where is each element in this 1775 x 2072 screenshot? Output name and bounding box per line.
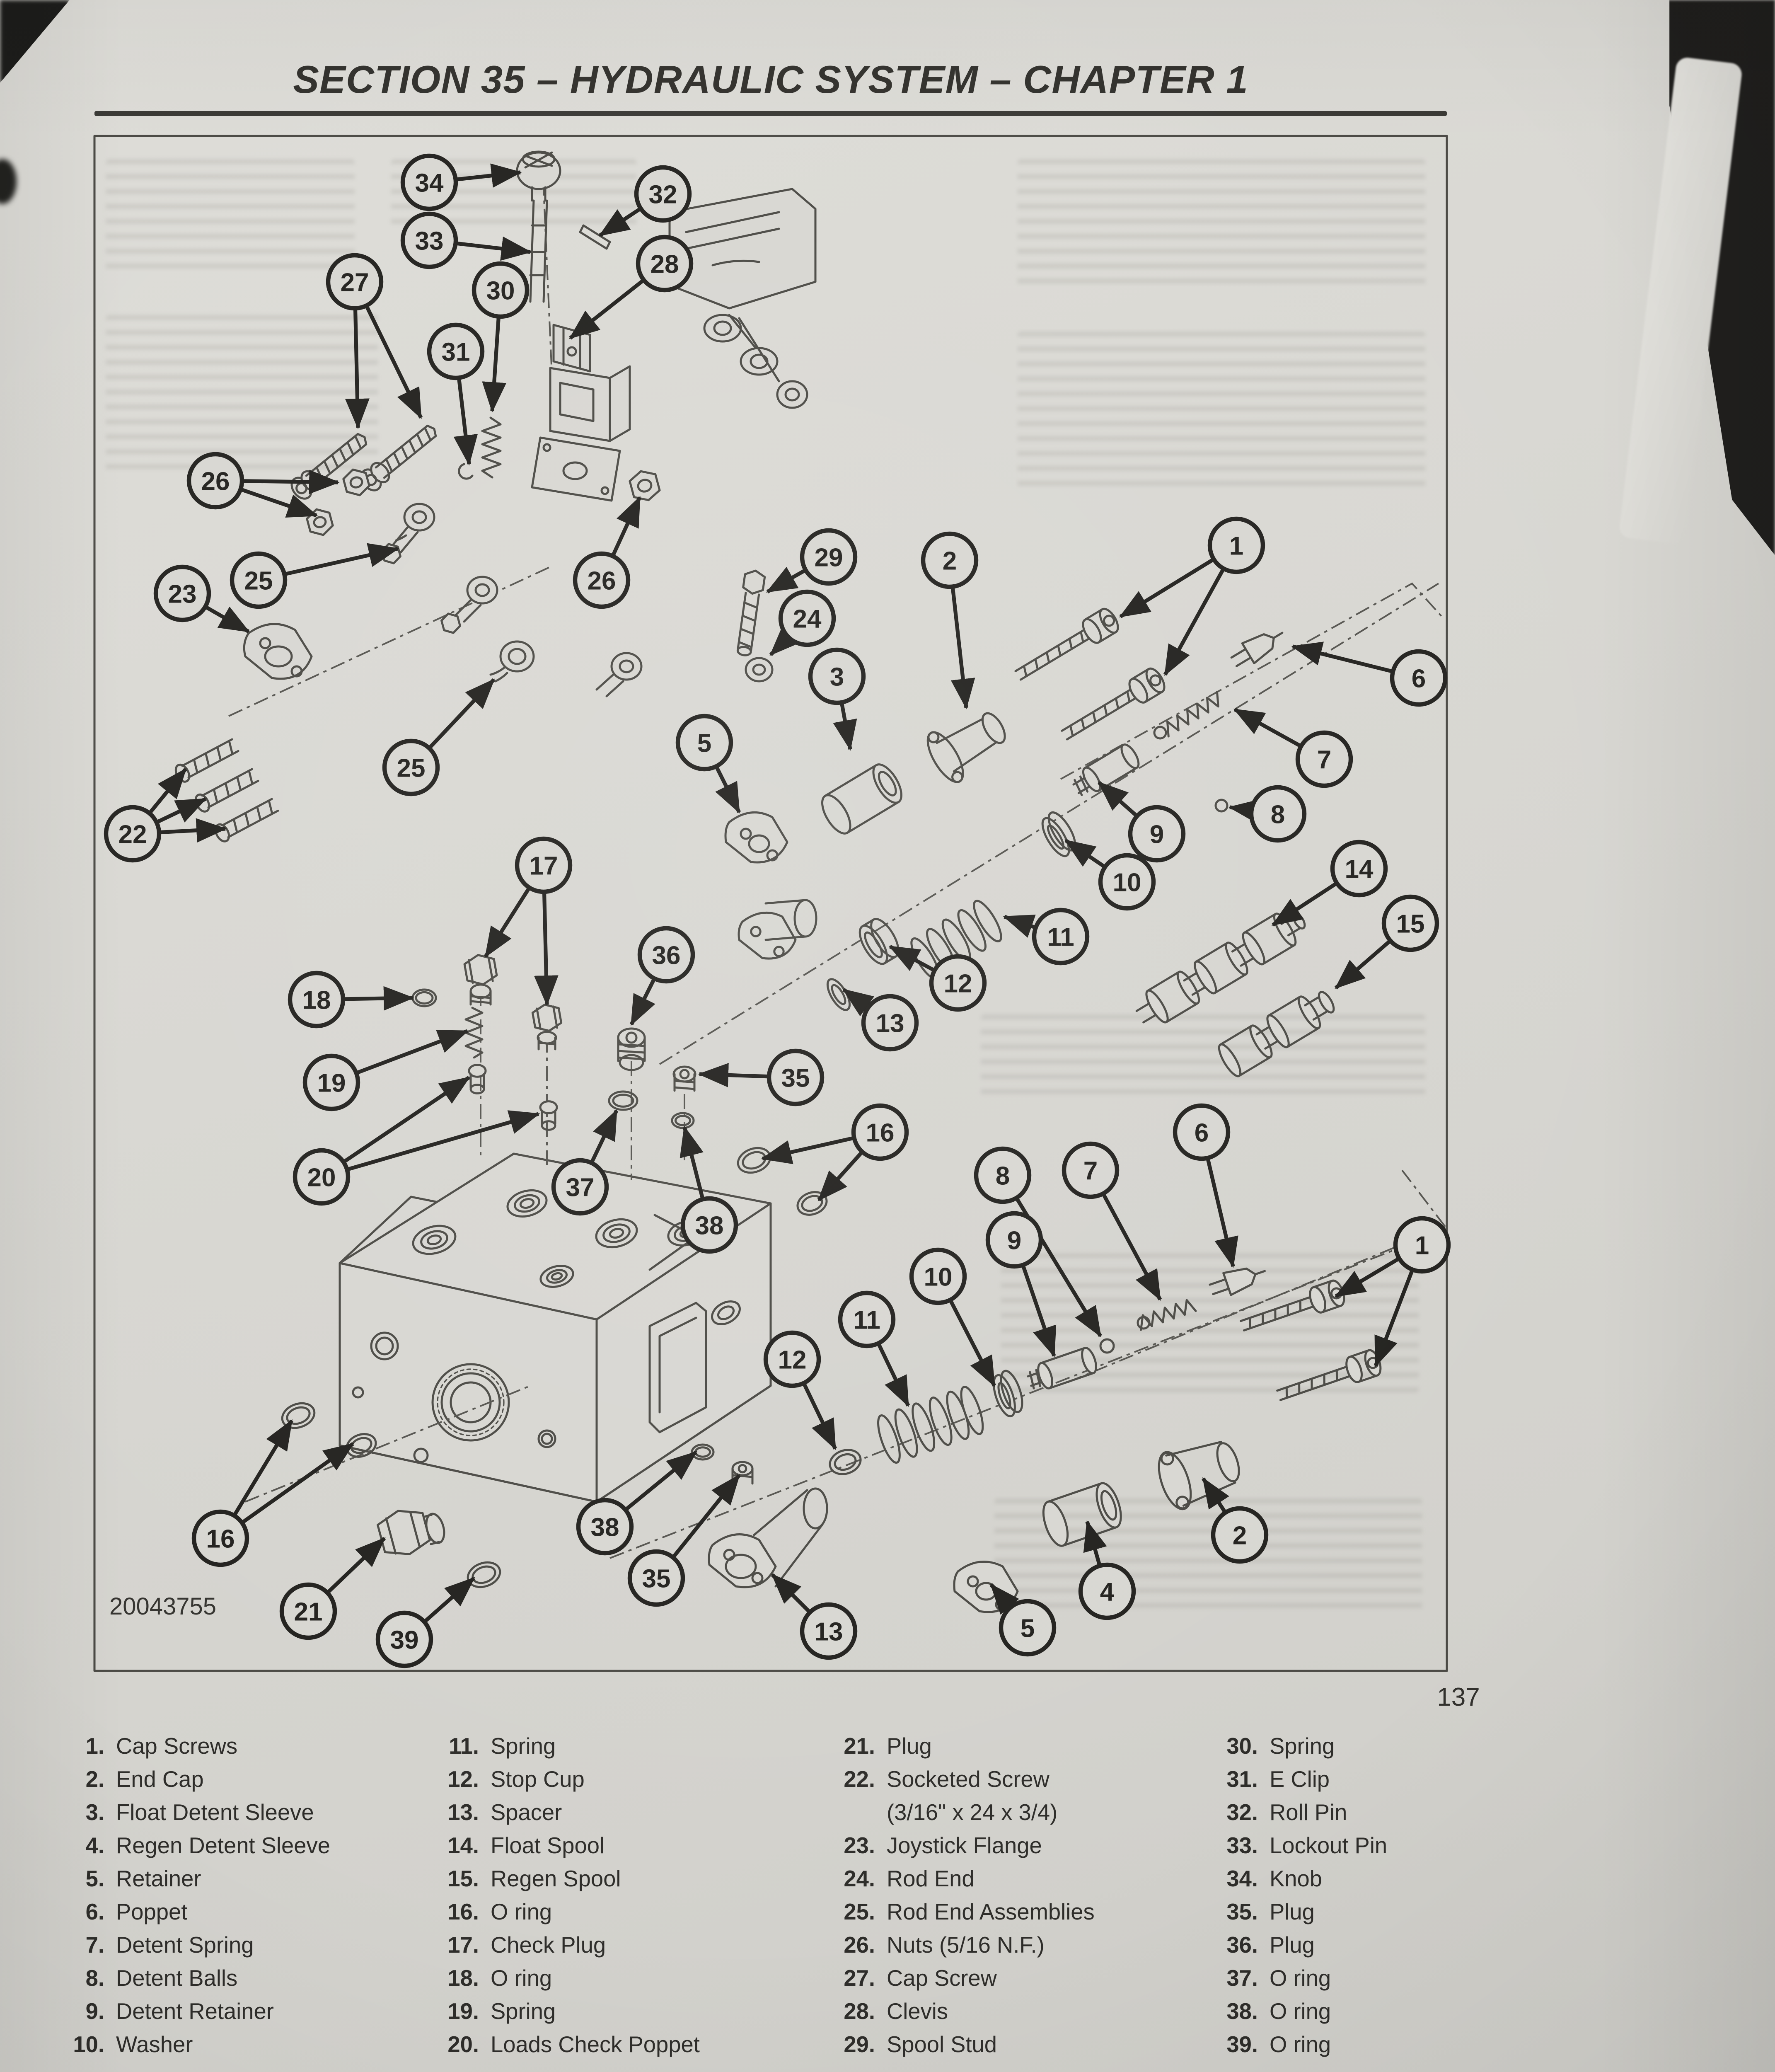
- callout-12: 12: [766, 1333, 819, 1386]
- callout-arrow: [1235, 709, 1299, 746]
- parts-column: 11.Spring12.Stop Cup13.Spacer14.Float Sp…: [434, 1731, 700, 2062]
- callout-arrow: [1023, 1266, 1054, 1356]
- parts-list-item: 30.Spring: [1213, 1731, 1387, 1764]
- parts-list-item: 1.Cap Screws: [60, 1731, 330, 1764]
- parts-list-item: 8.Detent Balls: [60, 1963, 330, 1996]
- svg-text:9: 9: [1150, 821, 1164, 849]
- svg-text:24: 24: [793, 605, 822, 634]
- photo-of-manual-page: SECTION 35 – HYDRAULIC SYSTEM – CHAPTER …: [0, 0, 1775, 2072]
- callout-arrow: [235, 1421, 292, 1514]
- callout-arrow: [544, 893, 547, 1005]
- callout-9: 9: [988, 1213, 1041, 1266]
- svg-text:4: 4: [1100, 1578, 1115, 1607]
- page-number: 137: [1392, 1684, 1525, 1714]
- svg-text:5: 5: [697, 729, 711, 758]
- parts-list-item: 35.Plug: [1213, 1896, 1387, 1929]
- parts-list-item: 22.Socketed Screw: [830, 1764, 1095, 1797]
- callout-10: 10: [1100, 855, 1154, 908]
- svg-text:1: 1: [1229, 532, 1243, 561]
- svg-text:14: 14: [1345, 855, 1374, 884]
- parts-list-item: 37.O ring: [1213, 1963, 1387, 1996]
- svg-text:25: 25: [244, 567, 273, 595]
- callout-arrow: [1336, 942, 1389, 988]
- svg-text:12: 12: [778, 1346, 807, 1375]
- svg-text:2: 2: [1233, 1522, 1247, 1550]
- callout-arrow: [1230, 807, 1250, 810]
- callout-34: 34: [403, 156, 456, 209]
- callout-16: 16: [194, 1512, 247, 1565]
- callout-arrow: [890, 946, 933, 970]
- svg-text:23: 23: [168, 580, 197, 609]
- svg-text:5: 5: [1021, 1615, 1035, 1643]
- parts-list-item: 28.Clevis: [830, 1996, 1095, 2029]
- svg-text:27: 27: [341, 269, 369, 297]
- callout-13: 13: [863, 996, 917, 1049]
- callout-arrow: [1087, 1522, 1099, 1564]
- callout-6: 6: [1175, 1106, 1228, 1159]
- callout-38: 38: [578, 1500, 631, 1553]
- callout-35: 35: [630, 1552, 683, 1605]
- callout-13: 13: [802, 1605, 855, 1658]
- parts-list-item: 38.O ring: [1213, 1996, 1387, 2029]
- callout-37: 37: [554, 1160, 607, 1213]
- callout-arrow: [767, 571, 804, 592]
- callout-arrow: [762, 1138, 853, 1159]
- svg-text:21: 21: [294, 1598, 323, 1627]
- callout-9: 9: [1130, 807, 1183, 860]
- callout-18: 18: [290, 973, 343, 1026]
- callout-arrow: [1376, 1271, 1412, 1366]
- svg-text:8: 8: [996, 1162, 1010, 1191]
- callout-arrow: [1273, 884, 1335, 925]
- svg-text:3: 3: [830, 663, 844, 692]
- callout-1: 1: [1395, 1218, 1449, 1271]
- callout-19: 19: [305, 1056, 358, 1109]
- svg-text:33: 33: [415, 227, 444, 256]
- callout-30: 30: [474, 264, 527, 317]
- svg-text:20: 20: [307, 1164, 336, 1192]
- svg-text:9: 9: [1007, 1227, 1021, 1255]
- parts-list-item: 12.Stop Cup: [434, 1764, 700, 1797]
- svg-text:18: 18: [302, 986, 331, 1015]
- callout-arrow: [329, 1538, 385, 1592]
- svg-text:6: 6: [1195, 1119, 1209, 1147]
- callout-15: 15: [1384, 897, 1437, 950]
- parts-list-item: 9.Detent Retainer: [60, 1996, 330, 2029]
- callout-arrow: [592, 1111, 617, 1162]
- callout-7: 7: [1298, 733, 1351, 786]
- callout-28: 28: [638, 237, 691, 290]
- svg-text:22: 22: [118, 821, 147, 849]
- callout-20: 20: [295, 1150, 348, 1203]
- svg-text:38: 38: [591, 1513, 619, 1542]
- callout-35: 35: [769, 1051, 822, 1104]
- float-spool-assembly-drawing: [660, 583, 1442, 1079]
- callout-arrow: [1004, 917, 1034, 927]
- svg-text:19: 19: [317, 1069, 346, 1098]
- callout-arrow: [207, 608, 249, 632]
- parts-list-item: 26.Nuts (5/16 N.F.): [830, 1929, 1095, 1963]
- svg-text:7: 7: [1317, 746, 1331, 775]
- svg-text:35: 35: [642, 1565, 671, 1593]
- callout-12: 12: [931, 956, 984, 1009]
- callout-17: 17: [517, 839, 570, 892]
- parts-list-item: 11.Spring: [434, 1731, 700, 1764]
- callout-2: 2: [1213, 1508, 1266, 1561]
- callout-26: 26: [189, 454, 242, 507]
- svg-text:39: 39: [390, 1626, 419, 1655]
- svg-text:10: 10: [924, 1263, 953, 1292]
- parts-list-item: 3.Float Detent Sleeve: [60, 1797, 330, 1830]
- callout-arrow: [457, 172, 520, 179]
- callout-arrow: [355, 310, 358, 428]
- parts-list-item: 6.Poppet: [60, 1896, 330, 1929]
- callout-arrow: [244, 481, 338, 482]
- parts-list-item: 4.Regen Detent Sleeve: [60, 1830, 330, 1863]
- parts-list-item: 17.Check Plug: [434, 1929, 700, 1963]
- callout-29: 29: [802, 530, 855, 583]
- parts-list-item: 13.Spacer: [434, 1797, 700, 1830]
- callout-8: 8: [1251, 787, 1304, 840]
- callout-11: 11: [840, 1293, 893, 1346]
- parts-list-item: 29.Spool Stud: [830, 2029, 1095, 2062]
- callout-arrow: [805, 1385, 835, 1449]
- callout-arrow: [699, 1074, 767, 1077]
- callout-arrow: [771, 638, 787, 655]
- callout-arrow: [951, 1301, 994, 1386]
- parts-list-item: 5.Retainer: [60, 1863, 330, 1896]
- callout-arrow: [842, 704, 850, 749]
- manual-page: SECTION 35 – HYDRAULIC SYSTEM – CHAPTER …: [0, 0, 1775, 2072]
- callout-8: 8: [976, 1149, 1029, 1202]
- callout-31: 31: [429, 325, 482, 378]
- callout-16: 16: [854, 1106, 907, 1159]
- svg-text:31: 31: [442, 338, 470, 367]
- parts-list-item: 32.Roll Pin: [1213, 1797, 1387, 1830]
- svg-text:8: 8: [1271, 801, 1285, 829]
- svg-text:13: 13: [876, 1009, 904, 1038]
- callout-arrow: [150, 769, 186, 812]
- svg-text:38: 38: [695, 1212, 724, 1240]
- parts-column: 21.Plug22.Socketed Screw(3/16" x 24 x 3/…: [830, 1731, 1095, 2062]
- parts-list-item: 24.Rod End: [830, 1863, 1095, 1896]
- parts-list-item: 18.O ring: [434, 1963, 700, 1996]
- callout-38: 38: [683, 1198, 736, 1251]
- callout-circles: 3432332827303126252322262924252136578910…: [106, 156, 1449, 1666]
- svg-text:28: 28: [651, 250, 679, 279]
- parts-list-item: 31.E Clip: [1213, 1764, 1387, 1797]
- parts-list-item: 33.Lockout Pin: [1213, 1830, 1387, 1863]
- callout-arrow: [492, 318, 498, 411]
- parts-list-item: 27.Cap Screw: [830, 1963, 1095, 1996]
- svg-text:1: 1: [1415, 1232, 1429, 1260]
- callout-arrow: [158, 799, 206, 822]
- parts-list-item: 2.End Cap: [60, 1764, 330, 1797]
- callout-2: 2: [923, 534, 976, 587]
- svg-text:25: 25: [397, 754, 426, 783]
- parts-list-item: 19.Spring: [434, 1996, 700, 2029]
- callout-arrow: [772, 1575, 809, 1611]
- callout-5: 5: [678, 716, 731, 769]
- callout-6: 6: [1392, 651, 1445, 704]
- svg-text:10: 10: [1113, 869, 1141, 897]
- callout-arrow: [819, 1153, 861, 1200]
- callout-arrow: [879, 1345, 908, 1406]
- callout-25: 25: [385, 741, 438, 794]
- callout-1: 1: [1210, 519, 1263, 572]
- parts-list-item: 34.Knob: [1213, 1863, 1387, 1896]
- callout-32: 32: [636, 167, 689, 220]
- callout-arrow: [345, 998, 413, 999]
- callout-11: 11: [1034, 910, 1087, 963]
- parts-list-item: 25.Rod End Assemblies: [830, 1896, 1095, 1929]
- svg-text:37: 37: [566, 1174, 595, 1202]
- svg-text:16: 16: [206, 1525, 235, 1554]
- callout-arrow: [1336, 1259, 1398, 1296]
- parts-column: 30.Spring31.E Clip32.Roll Pin33.Lockout …: [1213, 1731, 1387, 2062]
- callout-arrow: [358, 1031, 467, 1072]
- callout-arrow: [631, 980, 654, 1024]
- parts-list-item: 36.Plug: [1213, 1929, 1387, 1963]
- callout-arrow: [367, 307, 421, 418]
- svg-text:6: 6: [1412, 665, 1426, 693]
- callout-5: 5: [1001, 1601, 1054, 1654]
- callout-arrow: [1293, 646, 1391, 671]
- callout-arrow: [600, 209, 639, 235]
- svg-text:11: 11: [1047, 923, 1074, 952]
- svg-text:16: 16: [866, 1119, 895, 1147]
- parts-list-item: 23.Joystick Flange: [830, 1830, 1095, 1863]
- svg-text:29: 29: [815, 544, 843, 572]
- svg-text:15: 15: [1396, 910, 1425, 939]
- callout-4: 4: [1081, 1565, 1134, 1618]
- parts-list-item: 15.Regen Spool: [434, 1863, 700, 1896]
- parts-list-item: 20.Loads Check Poppet: [434, 2029, 700, 2062]
- callout-arrow: [457, 244, 530, 252]
- callout-7: 7: [1064, 1144, 1117, 1197]
- callout-arrow: [243, 1444, 353, 1522]
- svg-text:32: 32: [649, 181, 677, 209]
- callout-arrow: [286, 549, 398, 574]
- callout-arrow: [1120, 560, 1212, 617]
- svg-text:26: 26: [588, 567, 616, 595]
- parts-list-item: 39.O ring: [1213, 2029, 1387, 2062]
- callout-arrow: [717, 768, 739, 812]
- callout-arrow: [613, 497, 640, 554]
- callout-arrow: [570, 281, 643, 338]
- callout-arrow: [1104, 1195, 1160, 1300]
- svg-text:34: 34: [415, 169, 444, 198]
- callout-arrow: [459, 380, 469, 464]
- callout-arrow: [426, 1578, 474, 1621]
- callout-27: 27: [328, 255, 381, 308]
- callout-36: 36: [640, 928, 693, 981]
- callout-3: 3: [810, 650, 863, 703]
- parts-list-item: 16.O ring: [434, 1896, 700, 1929]
- svg-text:35: 35: [781, 1064, 810, 1093]
- callout-26: 26: [575, 554, 628, 607]
- callout-25: 25: [232, 554, 285, 607]
- svg-text:11: 11: [853, 1306, 880, 1335]
- parts-list-item: 14.Float Spool: [434, 1830, 700, 1863]
- callout-33: 33: [403, 214, 456, 267]
- parts-list-item: (3/16" x 24 x 3/4): [830, 1797, 1095, 1830]
- callout-10: 10: [912, 1250, 965, 1303]
- callout-arrow: [1208, 1159, 1233, 1266]
- svg-text:17: 17: [530, 852, 558, 881]
- svg-text:36: 36: [652, 942, 681, 970]
- callout-arrow: [953, 588, 966, 708]
- callout-24: 24: [781, 592, 834, 645]
- parts-column: 1.Cap Screws2.End Cap3.Float Detent Slee…: [60, 1731, 330, 2062]
- figure-code: 20043755: [109, 1595, 216, 1621]
- svg-text:26: 26: [201, 467, 230, 496]
- svg-text:13: 13: [815, 1618, 843, 1646]
- callout-arrow: [430, 680, 494, 747]
- svg-text:7: 7: [1083, 1157, 1098, 1186]
- callout-arrow: [1066, 840, 1104, 866]
- callout-arrow: [1099, 782, 1136, 815]
- svg-text:30: 30: [486, 277, 515, 305]
- callout-22: 22: [106, 807, 159, 860]
- callout-39: 39: [378, 1613, 431, 1666]
- svg-text:12: 12: [944, 970, 972, 998]
- callout-23: 23: [156, 567, 209, 620]
- callout-arrow: [345, 1077, 469, 1161]
- parts-list-item: 21.Plug: [830, 1731, 1095, 1764]
- callout-14: 14: [1332, 842, 1386, 895]
- parts-list-item: 7.Detent Spring: [60, 1929, 330, 1963]
- svg-text:2: 2: [943, 547, 957, 576]
- callout-arrow: [486, 889, 529, 956]
- callout-21: 21: [282, 1585, 335, 1638]
- parts-list-item: 10.Washer: [60, 2029, 330, 2062]
